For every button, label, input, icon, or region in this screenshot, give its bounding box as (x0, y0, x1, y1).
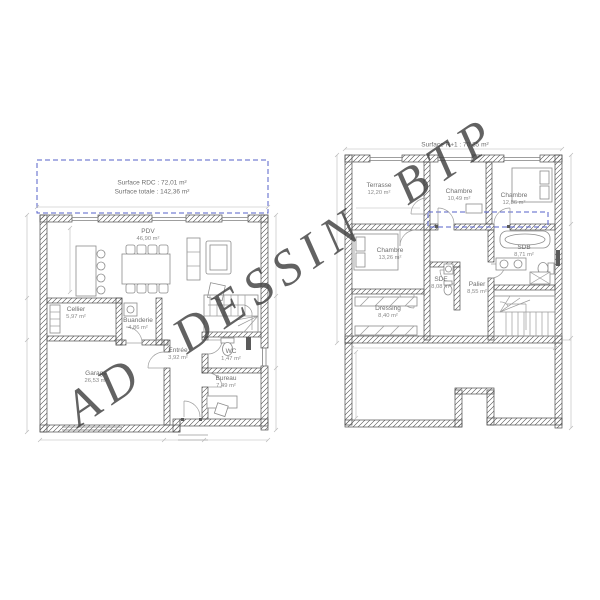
floorplan-drawing (0, 0, 600, 600)
floorplan-sheet: Surface RDC : 72,01 m² Surface totale : … (0, 0, 600, 600)
r1-lower-footprint (345, 343, 562, 427)
room-label-chambre-1: Chambre 10,49 m² (446, 188, 473, 204)
rdc-surface-line2: Surface totale : 142,36 m² (115, 188, 190, 197)
rdc-stairs (204, 295, 258, 332)
room-label-sde: SDE 8,08 m² (431, 276, 451, 292)
rdc-dining-table (122, 245, 170, 293)
room-label-palier: Palier 8,55 m² (467, 281, 487, 297)
rdc-bureau-furniture (207, 396, 237, 417)
rdc-surface-note: Surface RDC : 72,01 m² Surface totale : … (115, 179, 190, 198)
room-label-dressing: Dressing 8,40 m² (375, 305, 401, 321)
room-label-buanderie: Buanderie 4,86 m² (123, 317, 153, 333)
room-label-pdv: PDV 46,90 m² (137, 228, 160, 244)
room-label-wc: WC 1,47 m² (221, 348, 241, 364)
room-label-sdb: SDB 8,71 m² (514, 244, 534, 260)
r1-surface-line: Surface R+1 : 70,35 m² (421, 140, 488, 149)
rdc-kitchen-island (76, 246, 105, 296)
room-label-bureau: Bureau 7,49 m² (216, 375, 237, 391)
r1-windows (370, 158, 540, 161)
room-label-chambre-3: Chambre 13,26 m² (377, 247, 404, 263)
room-label-entree: Entrée 3,92 m² (168, 347, 188, 363)
room-label-terrasse: Terrasse 12,20 m² (367, 182, 392, 198)
r1-desk-chambre-middle (466, 204, 482, 213)
rdc-cellier-fixtures (50, 305, 60, 333)
room-label-chambre-2: Chambre 12,86 m² (501, 192, 528, 208)
rdc-surface-line1: Surface RDC : 72,01 m² (115, 179, 190, 188)
room-label-cellier: Cellier 5,97 m² (66, 306, 86, 322)
rdc-lounge-furniture (187, 238, 231, 300)
rdc-washing-machine (124, 303, 137, 316)
room-label-garage: Garage 26,53 m² (85, 370, 108, 386)
r1-surface-note: Surface R+1 : 70,35 m² (421, 140, 488, 149)
r1-stairs (494, 296, 555, 336)
